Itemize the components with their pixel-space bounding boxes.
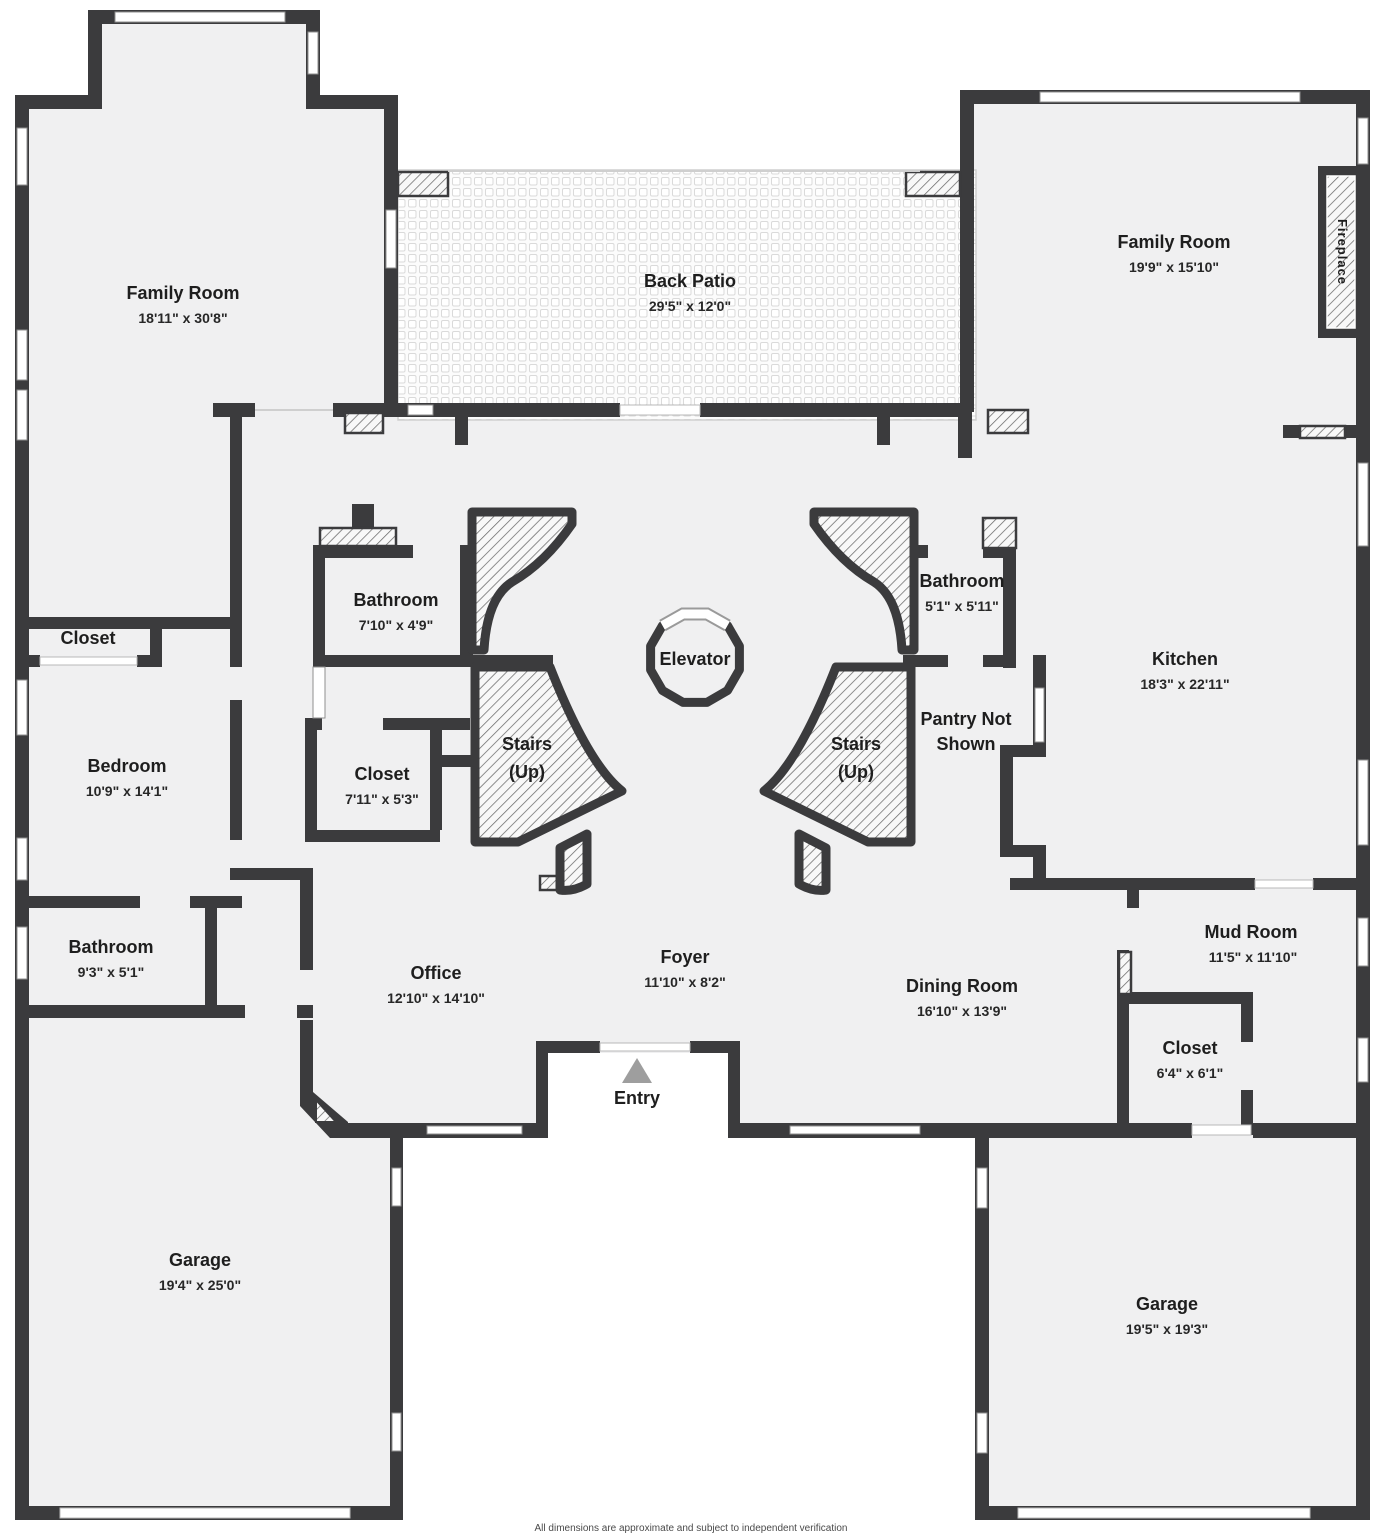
- room-label-bathroom-right: Bathroom: [920, 571, 1005, 591]
- room-label-garage-left: Garage: [169, 1250, 231, 1270]
- room-label-closet-top-left: Closet: [60, 628, 115, 648]
- room-dims-kitchen: 18'3" x 22'11": [1140, 676, 1229, 692]
- room-label-family-room-right: Family Room: [1117, 232, 1230, 252]
- room-label-kitchen: Kitchen: [1152, 649, 1218, 669]
- room-dims-family-room-left: 18'11" x 30'8": [138, 310, 227, 326]
- room-dims-bathroom-right: 5'1" x 5'11": [925, 598, 999, 614]
- pantry-label-line1: Pantry Not: [920, 709, 1011, 729]
- room-dims-mud-room: 11'5" x 11'10": [1209, 949, 1297, 965]
- room-dims-bedroom: 10'9" x 14'1": [86, 783, 168, 799]
- room-label-foyer: Foyer: [660, 947, 709, 967]
- room-label-dining-room: Dining Room: [906, 976, 1018, 996]
- floor-plan-page: Fireplace: [0, 0, 1382, 1536]
- stairs-left-label-line2: (Up): [509, 762, 545, 782]
- room-dims-foyer: 11'10" x 8'2": [644, 974, 725, 990]
- fireplace-label: Fireplace: [1335, 219, 1350, 285]
- stairs-left-label-line1: Stairs: [502, 734, 552, 754]
- stairs-right-label-line1: Stairs: [831, 734, 881, 754]
- room-dims-garage-right: 19'5" x 19'3": [1126, 1321, 1208, 1337]
- room-dims-family-room-right: 19'9" x 15'10": [1129, 259, 1219, 275]
- stairs-right-label-line2: (Up): [838, 762, 874, 782]
- room-dims-bathroom-center: 7'10" x 4'9": [359, 617, 433, 633]
- room-dims-office: 12'10" x 14'10": [387, 990, 485, 1006]
- room-label-mud-room: Mud Room: [1205, 922, 1298, 942]
- room-label-bathroom-left: Bathroom: [69, 937, 154, 957]
- room-label-closet-center: Closet: [354, 764, 409, 784]
- room-label-family-room-left: Family Room: [126, 283, 239, 303]
- elevator-label: Elevator: [659, 649, 730, 669]
- room-dims-dining-room: 16'10" x 13'9": [917, 1003, 1007, 1019]
- patio-tile-surface: [398, 170, 976, 420]
- room-label-garage-right: Garage: [1136, 1294, 1198, 1314]
- room-label-closet-right: Closet: [1162, 1038, 1217, 1058]
- room-dims-back-patio: 29'5" x 12'0": [649, 298, 731, 314]
- room-dims-bathroom-left: 9'3" x 5'1": [78, 964, 145, 980]
- room-label-bedroom: Bedroom: [87, 756, 166, 776]
- fireplace: Fireplace: [1318, 166, 1364, 338]
- room-label-back-patio: Back Patio: [644, 271, 736, 291]
- room-dims-closet-center: 7'11" x 5'3": [345, 791, 419, 807]
- room-dims-closet-right: 6'4" x 6'1": [1157, 1065, 1224, 1081]
- entry-label: Entry: [614, 1088, 660, 1108]
- room-dims-garage-left: 19'4" x 25'0": [159, 1277, 241, 1293]
- footer-disclaimer: All dimensions are approximate and subje…: [535, 1523, 848, 1534]
- room-label-office: Office: [410, 963, 461, 983]
- pantry-label-line2: Shown: [937, 734, 996, 754]
- room-label-bathroom-center: Bathroom: [354, 590, 439, 610]
- floor-plan-drawing: Fireplace: [0, 0, 1382, 1536]
